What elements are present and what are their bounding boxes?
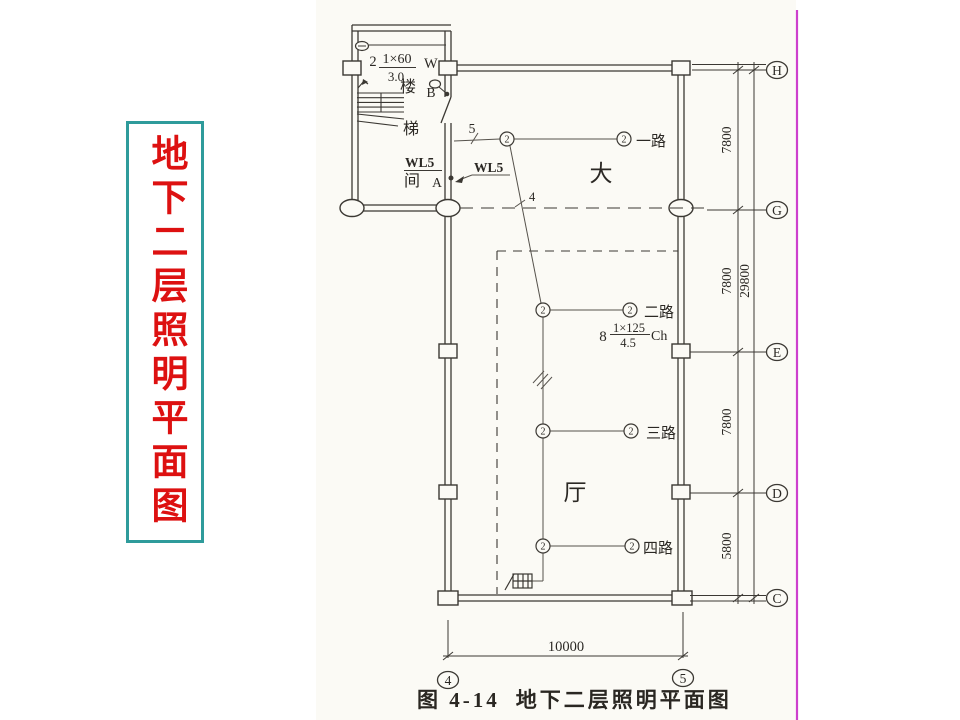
circuit-label-2: 二路 xyxy=(644,304,674,321)
stair-labels: 2 1×60 3.0 W 楼 梯 WL5 间 A B xyxy=(369,52,442,190)
hall-lum-lamp: 1×125 xyxy=(613,321,645,335)
svg-text:2: 2 xyxy=(622,135,627,146)
room-char-ting: 厅 xyxy=(564,480,587,505)
dim-label-bottom: 10000 xyxy=(548,639,584,655)
svg-text:2: 2 xyxy=(630,542,635,553)
circuit-label-4: 四路 xyxy=(643,540,673,557)
svg-text:2: 2 xyxy=(541,542,546,553)
feeder-label-wire: WL5 xyxy=(474,160,504,175)
door-leaf xyxy=(441,97,451,123)
stair-lum-count: 2 xyxy=(369,54,376,70)
figure-title: 地下二层照明平面图 xyxy=(516,688,732,712)
connection-point-b xyxy=(445,92,450,97)
circuit-label-3: 三路 xyxy=(646,425,676,442)
stair-lum-type: W xyxy=(424,56,438,72)
svg-text:2: 2 xyxy=(541,306,546,317)
axis-label-c: C xyxy=(772,591,781,606)
connection-point-a xyxy=(449,176,454,181)
feeder-label-wall: WL5 xyxy=(405,155,435,170)
grid-bubble-labels: H G E D C 4 5 xyxy=(445,63,783,688)
staircase xyxy=(357,79,404,126)
axis-label-h: H xyxy=(772,63,782,78)
distribution-board-icon xyxy=(505,574,532,590)
wire-tick-4 xyxy=(515,200,525,207)
floor-plan-drawing: H G E D C 4 5 7800 7800 29800 7800 5800 xyxy=(0,0,960,720)
figure-number: 图 4-14 xyxy=(417,688,500,712)
room-char-jian: 间 xyxy=(404,172,420,190)
dimension-lines-right xyxy=(733,62,759,604)
svg-text:2: 2 xyxy=(505,135,510,146)
axis-label-d: D xyxy=(772,486,782,501)
hall-lum-count: 8 xyxy=(599,329,607,345)
room-char-lou: 楼 xyxy=(400,78,416,96)
hall-lum-type: Ch xyxy=(651,329,667,344)
figure-caption: 图 4-14地下二层照明平面图 xyxy=(417,684,732,714)
point-a-label: A xyxy=(432,175,442,190)
dim-label-total: 29800 xyxy=(737,264,752,298)
room-char-da: 大 xyxy=(590,161,613,186)
room-char-ti: 梯 xyxy=(403,120,419,138)
axis-label-e: E xyxy=(773,345,781,360)
stair-lum-lamp: 1×60 xyxy=(383,52,412,67)
axis-label-g: G xyxy=(772,203,782,218)
point-b-label: B xyxy=(426,85,435,100)
hall-labels: 5 4 WL5 大 厅 一路 二路 三路 四路 8 1×125 4.5 Ch xyxy=(469,121,676,557)
svg-text:2: 2 xyxy=(629,427,634,438)
svg-text:2: 2 xyxy=(541,427,546,438)
stair-direction-arrow xyxy=(362,79,368,85)
hall-lum-height: 4.5 xyxy=(620,336,636,350)
dim-label-ed: 7800 xyxy=(719,408,734,435)
dim-label-ge: 7800 xyxy=(719,267,734,294)
wl5-arrowhead xyxy=(455,176,464,183)
presentation-slide: 地下二层照明平面图 xyxy=(0,0,960,720)
circuit-label-1: 一路 xyxy=(636,133,666,150)
svg-text:2: 2 xyxy=(628,306,633,317)
dim-label-hg: 7800 xyxy=(719,126,734,153)
circuit-wiring xyxy=(454,133,625,581)
wire-count-5: 5 xyxy=(469,121,476,136)
wire-count-4: 4 xyxy=(529,190,536,204)
dim-label-dc: 5800 xyxy=(719,532,734,559)
